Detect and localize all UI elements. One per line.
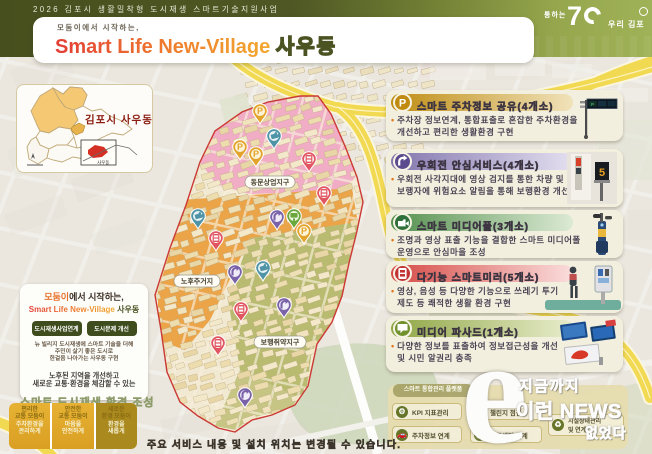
svg-text:P: P bbox=[591, 102, 594, 108]
svg-text:김포시 사우동: 김포시 사우동 bbox=[85, 113, 153, 126]
svg-text:5: 5 bbox=[599, 167, 605, 179]
svg-text:P: P bbox=[253, 149, 259, 159]
svg-text:P: P bbox=[398, 98, 405, 110]
svg-text:P: P bbox=[237, 142, 243, 152]
svg-text:동문상업지구: 동문상업지구 bbox=[251, 178, 290, 187]
svg-text:P: P bbox=[257, 106, 263, 116]
svg-text:사우동: 사우동 bbox=[97, 159, 109, 166]
svg-text:보행취약지구: 보행취약지구 bbox=[261, 338, 300, 347]
svg-text:노후주거지: 노후주거지 bbox=[181, 277, 213, 286]
svg-text:P: P bbox=[301, 226, 307, 236]
